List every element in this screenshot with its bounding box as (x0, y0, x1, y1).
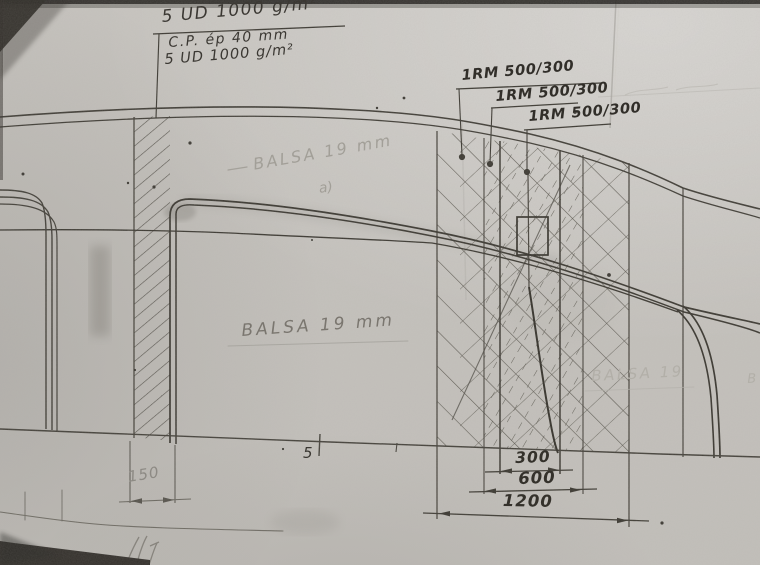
balsa-right-fragment: B (747, 373, 757, 386)
drawing-linework (0, 0, 760, 565)
station-label: 5 (303, 446, 313, 461)
paper-grain-overlay (0, 0, 760, 565)
pencil-technical-drawing: 5 UD 1000 g/m² C.P. ép 40 mm 5 UD 1000 g… (0, 0, 760, 565)
dim-label-600: 600 (518, 470, 556, 488)
dim-label-300: 300 (515, 450, 551, 467)
balsa-upper-index: a) (318, 180, 334, 196)
dim-label-1200: 1200 (503, 493, 553, 510)
